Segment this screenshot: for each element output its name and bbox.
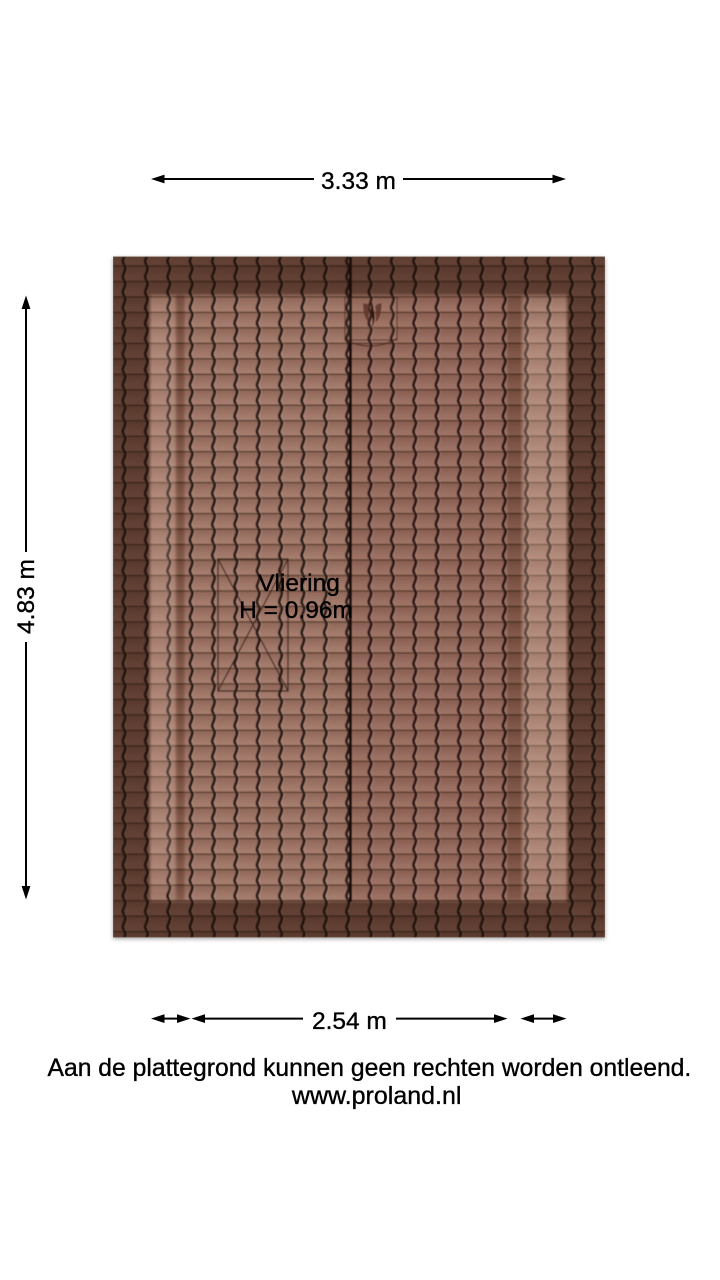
svg-text:4.83 m: 4.83 m xyxy=(13,559,40,634)
svg-text:H = 0.96m: H = 0.96m xyxy=(239,597,353,624)
svg-text:Aan de plattegrond kunnen geen: Aan de plattegrond kunnen geen rechten w… xyxy=(48,1055,692,1082)
svg-text:Vliering: Vliering xyxy=(258,570,340,597)
svg-text:2.54 m: 2.54 m xyxy=(312,1008,387,1035)
svg-text:3.33 m: 3.33 m xyxy=(321,168,396,195)
svg-text:www.proland.nl: www.proland.nl xyxy=(291,1082,462,1110)
